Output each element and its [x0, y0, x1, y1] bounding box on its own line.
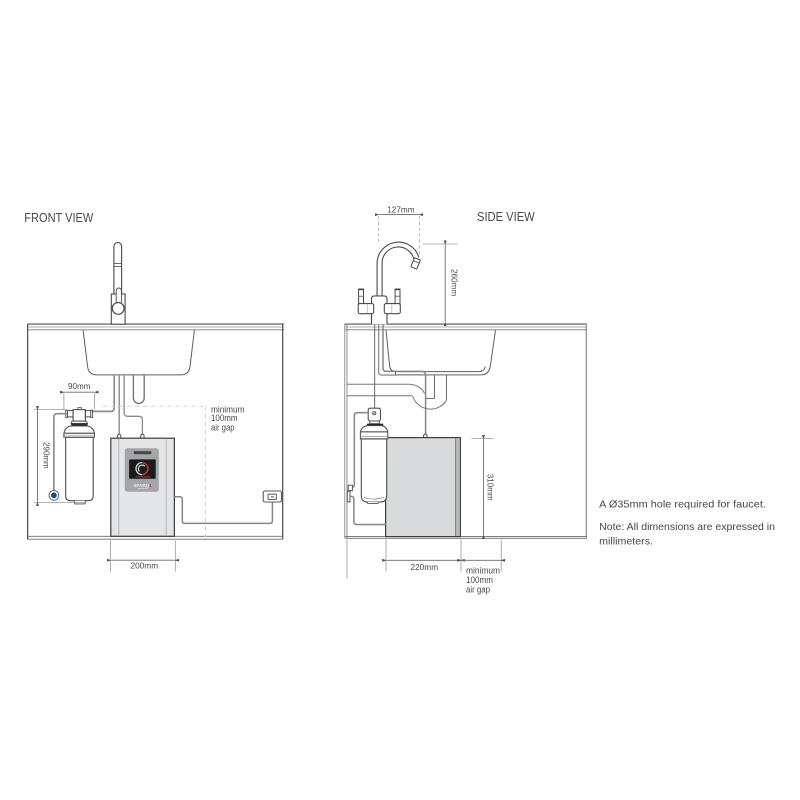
svg-text:310mm: 310mm: [486, 474, 495, 501]
svg-text:200mm: 200mm: [130, 561, 158, 571]
svg-text:SPARQ1: SPARQ1: [133, 483, 152, 488]
svg-text:SIDE VIEW: SIDE VIEW: [477, 209, 535, 224]
svg-text:minimum: minimum: [466, 565, 500, 575]
svg-text:Note: All dimensions are expre: Note: All dimensions are expressed in: [599, 522, 775, 533]
svg-text:air gap: air gap: [211, 422, 235, 432]
svg-text:air gap: air gap: [466, 584, 490, 594]
svg-text:millimeters.: millimeters.: [599, 537, 653, 548]
svg-text:100mm: 100mm: [466, 575, 493, 585]
svg-text:FRONT VIEW: FRONT VIEW: [24, 210, 94, 225]
svg-text:220mm: 220mm: [410, 562, 438, 572]
svg-text:90mm: 90mm: [68, 382, 91, 391]
svg-text:A Ø35mm hole required for fauc: A Ø35mm hole required for faucet.: [599, 500, 766, 511]
svg-text:127mm: 127mm: [387, 205, 414, 214]
svg-text:290mm: 290mm: [41, 442, 50, 469]
svg-text:260mm: 260mm: [449, 269, 458, 296]
